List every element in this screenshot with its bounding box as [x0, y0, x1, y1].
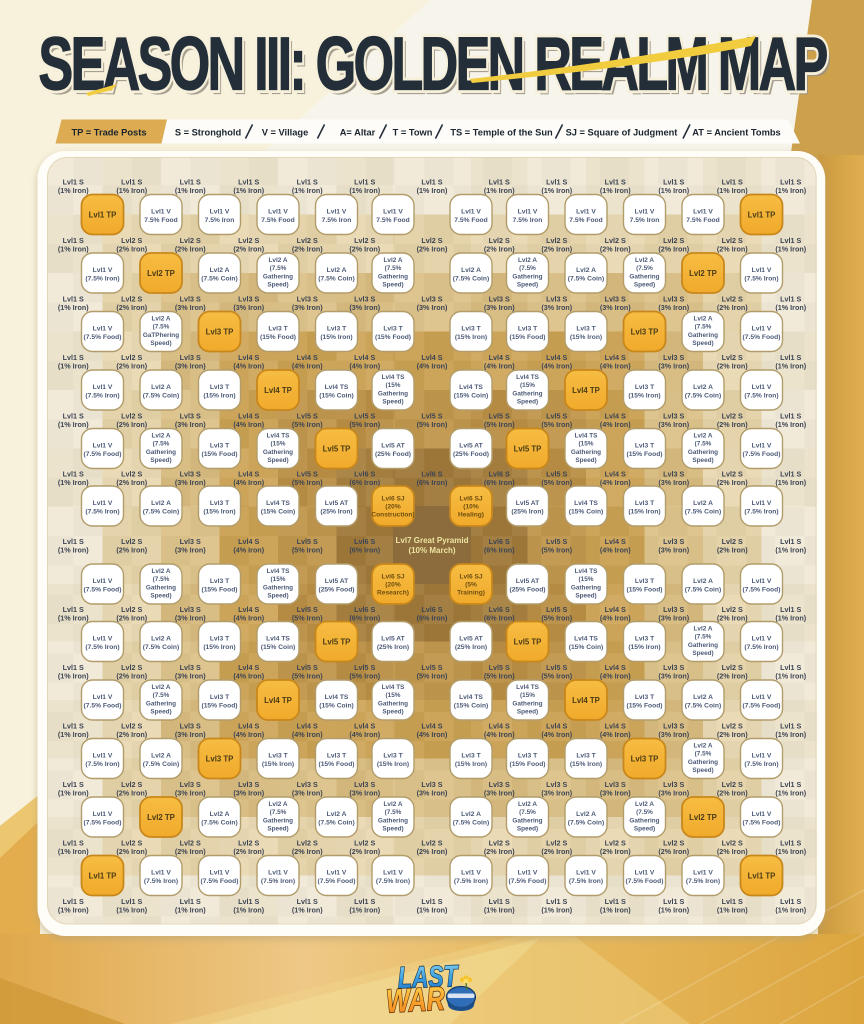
svg-text:WAR: WAR: [385, 980, 445, 1020]
svg-text:Lvl4 TP: Lvl4 TP: [572, 696, 600, 705]
svg-text:Lvl5 AT(25% Iron): Lvl5 AT(25% Iron): [511, 500, 543, 516]
svg-text:Lvl4 TP: Lvl4 TP: [264, 386, 292, 395]
svg-text:AT = Ancient Tombs: AT = Ancient Tombs: [692, 128, 780, 138]
svg-text:TS = Temple of the Sun: TS = Temple of the Sun: [450, 128, 553, 138]
svg-text:Lvl5 AT(25% Iron): Lvl5 AT(25% Iron): [377, 635, 409, 651]
svg-text:Lvl3 TP: Lvl3 TP: [631, 327, 659, 336]
svg-text:Lvl5 TP: Lvl5 TP: [514, 444, 542, 453]
svg-text:Lvl3 TP: Lvl3 TP: [206, 754, 234, 763]
svg-text:Lvl4 TS(15%GatheringSpeed): Lvl4 TS(15%GatheringSpeed): [378, 374, 408, 405]
svg-text:Lvl5 TP: Lvl5 TP: [323, 444, 351, 453]
svg-text:Lvl1 TP: Lvl1 TP: [89, 210, 117, 219]
svg-text:Lvl4 TS(15%GatheringSpeed): Lvl4 TS(15%GatheringSpeed): [571, 568, 601, 599]
svg-text:Lvl5 AT(25% Iron): Lvl5 AT(25% Iron): [455, 635, 487, 651]
svg-text:Lvl1 TP: Lvl1 TP: [748, 871, 776, 880]
svg-text:Lvl2 TP: Lvl2 TP: [147, 813, 175, 822]
svg-text:T = Town: T = Town: [393, 128, 433, 138]
svg-text:Lvl2 TP: Lvl2 TP: [689, 269, 717, 278]
svg-text:A= Altar: A= Altar: [340, 128, 376, 138]
svg-text:Lvl5 TP: Lvl5 TP: [323, 637, 351, 646]
svg-text:Lvl4 TS(15%GatheringSpeed): Lvl4 TS(15%GatheringSpeed): [263, 433, 293, 464]
svg-text:S = Stronghold: S = Stronghold: [175, 128, 242, 138]
svg-text:V = Village: V = Village: [262, 128, 309, 138]
svg-text:Lvl1 TP: Lvl1 TP: [89, 871, 117, 880]
svg-text:Lvl4 TS(15%GatheringSpeed): Lvl4 TS(15%GatheringSpeed): [263, 568, 293, 599]
svg-text:TP = Trade Posts: TP = Trade Posts: [71, 128, 146, 138]
svg-text:Lvl5 TP: Lvl5 TP: [514, 637, 542, 646]
svg-text:Lvl4 TS(15%GatheringSpeed): Lvl4 TS(15%GatheringSpeed): [378, 684, 408, 715]
svg-text:Lvl4 TS(15%GatheringSpeed): Lvl4 TS(15%GatheringSpeed): [512, 374, 542, 405]
svg-text:Lvl5 AT(25% Iron): Lvl5 AT(25% Iron): [320, 500, 352, 516]
svg-text:Lvl3 TP: Lvl3 TP: [631, 754, 659, 763]
svg-text:Lvl3 TP: Lvl3 TP: [206, 327, 234, 336]
svg-text:Lvl4 TS(15%GatheringSpeed): Lvl4 TS(15%GatheringSpeed): [512, 684, 542, 715]
svg-text:Lvl4 TP: Lvl4 TP: [264, 696, 292, 705]
svg-text:Lvl2 TP: Lvl2 TP: [689, 813, 717, 822]
svg-text:Lvl4 TP: Lvl4 TP: [572, 386, 600, 395]
svg-text:SJ = Square of Judgment: SJ = Square of Judgment: [566, 128, 678, 138]
svg-text:SEASON III: GOLDEN REALM MAP: SEASON III: GOLDEN REALM MAP: [38, 21, 826, 106]
svg-text:Lvl4 TS(15%GatheringSpeed): Lvl4 TS(15%GatheringSpeed): [571, 433, 601, 464]
svg-text:Lvl1 TP: Lvl1 TP: [748, 210, 776, 219]
svg-text:Lvl2 TP: Lvl2 TP: [147, 269, 175, 278]
